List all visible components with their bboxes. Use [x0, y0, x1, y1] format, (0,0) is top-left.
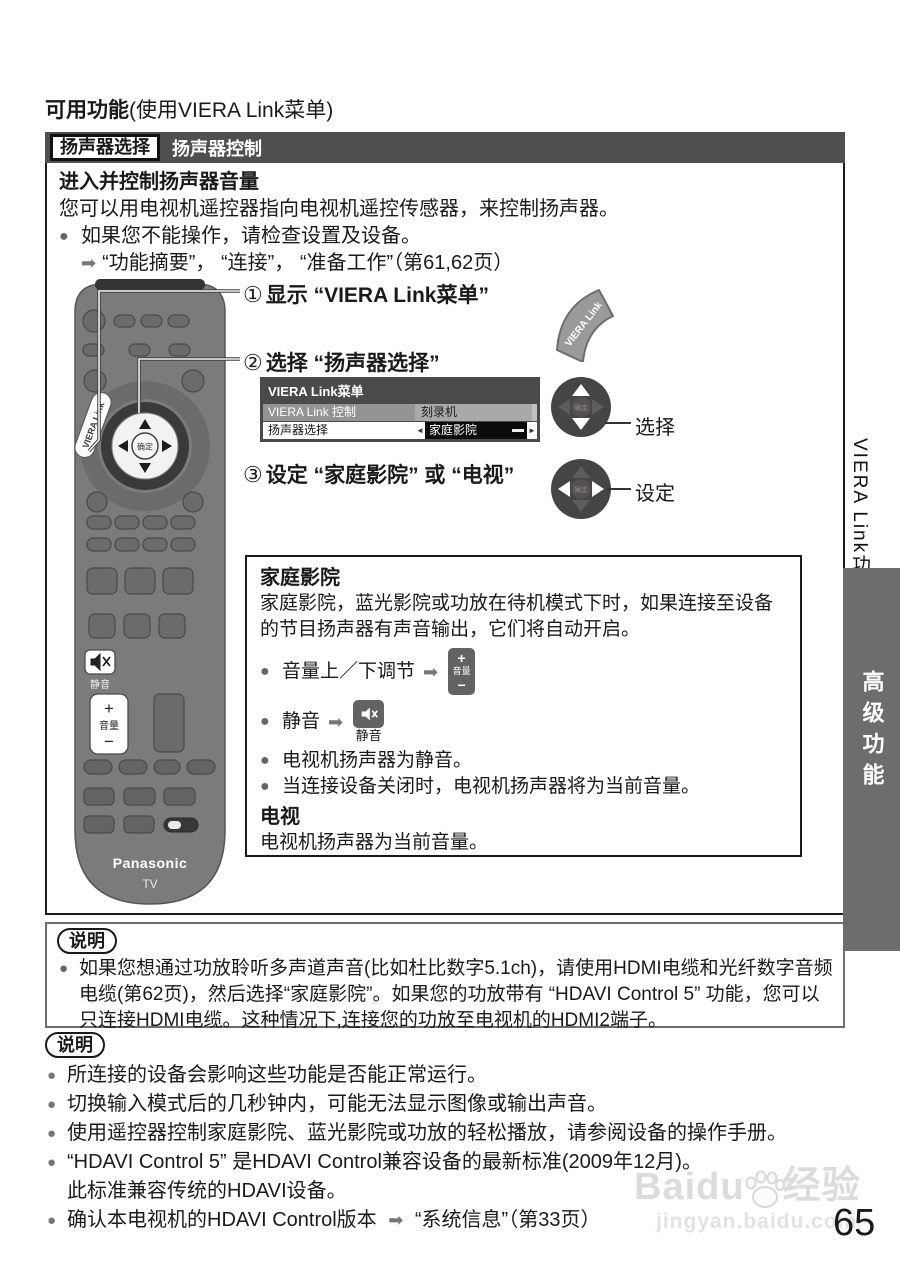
mute-speaker-icon — [359, 705, 379, 723]
volume-minus: − — [104, 732, 114, 751]
channel-rocker — [154, 694, 184, 752]
heading-normal: (使用VIERA Link菜单) — [129, 99, 333, 122]
osd-menu-row-2: 扬声器选择 ◄ 家庭影院 ► — [263, 422, 537, 439]
volume-minus-glyph: − — [458, 678, 466, 692]
note-1-label: 说明 — [57, 928, 117, 954]
watermark: Baidu 经验 — [634, 1154, 861, 1209]
sidebar-chapter-tab: 高级功能 — [843, 568, 900, 951]
remote-control-illustration: 确定 VIERA Link 静音 + — [57, 278, 243, 912]
osd-scrollbar — [532, 404, 537, 421]
dpad-ok-label: 确定 — [574, 403, 588, 412]
note-2-item: 使用遥控器控制家庭影院、蓝光影院或功放的轻松播放，请参阅设备的操作手册。 — [45, 1119, 855, 1148]
select-label: 选择 — [635, 411, 675, 440]
osd-row2-value-text: 家庭影院 — [429, 423, 477, 437]
heading-strong: 可用功能 — [45, 99, 129, 122]
remote-top-cap — [95, 279, 205, 290]
osd-row1-label: VIERA Link 控制 — [263, 404, 415, 421]
ok-label: 确定 — [137, 442, 153, 452]
osd-row2-value: 家庭影院 — [425, 422, 527, 439]
intro-title: 进入并控制扬声器音量 — [59, 169, 829, 196]
section-title: 扬声器控制 — [172, 135, 262, 161]
mute-bullet-text: 静音 — [260, 709, 320, 735]
volume-caption: 音量 — [99, 719, 119, 732]
osd-row1-value: 刻录机 — [415, 404, 532, 421]
osd-menu-title: VIERA Link菜单 — [263, 380, 537, 403]
mute-caption: 静音 — [356, 728, 382, 743]
note-2-last-text: 确认本电视机的HDAVI Control版本 — [67, 1209, 377, 1231]
note-2-item: 所连接的设备会影响这些功能是否能正常运行。 — [45, 1061, 855, 1090]
watermark-url: jingyan.baidu.com — [656, 1210, 857, 1234]
page-heading: 可用功能(使用VIERA Link菜单) — [45, 94, 333, 124]
note-1-text: 如果您想通过功放聆听多声道声音(比如杜比数字5.1ch)，请使用HDMI电缆和光… — [57, 956, 833, 1034]
dpad-select-icon: 确定 — [549, 375, 613, 439]
step-1-number: ① — [243, 282, 263, 307]
step-1: ①显示 “VIERA Link菜单” — [243, 279, 489, 309]
left-arrow-icon: ◄ — [415, 422, 425, 439]
page-number: 65 — [833, 1202, 875, 1245]
arrow-icon — [328, 709, 343, 735]
paw-icon — [741, 1169, 787, 1211]
section-bar: 扬声器选择 扬声器控制 — [45, 132, 845, 163]
note-2-last-ref: “系统信息”（第33页） — [415, 1209, 601, 1231]
note-2-label: 说明 — [45, 1032, 105, 1058]
step-2-number: ② — [243, 350, 263, 375]
volume-button-icon: + 音量 − — [448, 648, 475, 695]
mute-key-caption: 静音 — [90, 678, 110, 691]
watermark-suffix: 经验 — [783, 1154, 861, 1209]
set-lead-line — [607, 488, 631, 490]
intro-block: 进入并控制扬声器音量 您可以用电视机遥控器指向电视机遥控传感器，来控制扬声器。 … — [59, 169, 829, 277]
brand-label: Panasonic — [113, 855, 188, 871]
arrow-icon — [81, 253, 96, 273]
sidebar-chapter-tab-label: 高级功能 — [856, 670, 888, 794]
tv-mode-title: 电视 — [260, 804, 787, 830]
slide-switch-knob — [168, 821, 181, 829]
volume-label: 音量 — [453, 667, 471, 676]
home-theater-box: 家庭影院 家庭影院，蓝光影院或功放在待机模式下时，如果连接至设备的节目扬声器有声… — [245, 555, 802, 857]
step-3-number: ③ — [243, 462, 263, 487]
dpad-set-icon: 确定 — [549, 457, 613, 521]
intro-ref: “功能摘要”， “连接”， “准备工作”（第61,62页） — [102, 252, 513, 274]
volume-bullet-row: 音量上／下调节 + 音量 − — [260, 648, 787, 695]
mute-button-icon: 静音 — [353, 700, 384, 743]
volume-plus: + — [104, 699, 114, 718]
osd-row2-label: 扬声器选择 — [263, 422, 415, 439]
section-tag: 扬声器选择 — [50, 134, 160, 161]
tv-label: TV — [142, 877, 157, 891]
osd-menu: VIERA Link菜单 VIERA Link 控制 刻录机 扬声器选择 ◄ 家… — [260, 377, 540, 442]
viera-link-button-graphic: VIERA Link — [537, 276, 629, 362]
step-2: ②选择 “扬声器选择” — [243, 347, 440, 377]
volume-plus-glyph: + — [458, 651, 466, 665]
volume-bullet-text: 音量上／下调节 — [260, 659, 415, 685]
step-3: ③设定 “家庭影院” 或 “电视” — [243, 459, 514, 489]
watermark-brand: Baidu — [634, 1166, 745, 1209]
mute-bullet-row: 静音 静音 — [260, 700, 787, 743]
mute-glyph-box — [353, 700, 384, 728]
step-3-text: 设定 “家庭影院” 或 “电视” — [266, 464, 515, 487]
tv-mode-desc: 电视机扬声器为当前音量。 — [260, 830, 787, 856]
dpad-ok-label: 确定 — [574, 485, 588, 494]
main-content-box: 进入并控制扬声器音量 您可以用电视机遥控器指向电视机遥控传感器，来控制扬声器。 … — [45, 163, 845, 915]
home-theater-desc: 家庭影院，蓝光影院或功放在待机模式下时，如果连接至设备的节目扬声器有声音输出，它… — [260, 591, 787, 643]
set-label: 设定 — [635, 477, 675, 506]
arrow-icon — [388, 1210, 403, 1230]
ht-note-1: 电视机扬声器为静音。 — [282, 750, 472, 771]
note-2-item: 切换输入模式后的几秒钟内，可能无法显示图像或输出声音。 — [45, 1090, 855, 1119]
right-arrow-icon: ► — [527, 422, 537, 439]
note-box-1: 说明 如果您想通过功放聆听多声道声音(比如杜比数字5.1ch)，请使用HDMI电… — [45, 922, 845, 1028]
intro-line: 您可以用电视机遥控器指向电视机遥控传感器，来控制扬声器。 — [59, 196, 829, 223]
intro-bullet: 如果您不能操作，请检查设置及设备。 — [81, 225, 421, 247]
osd-value-indicator — [512, 429, 524, 432]
osd-menu-row-1: VIERA Link 控制 刻录机 — [263, 404, 537, 421]
step-2-text: 选择 “扬声器选择” — [266, 352, 440, 375]
select-lead-line — [605, 422, 631, 424]
home-theater-title: 家庭影院 — [260, 565, 787, 591]
ht-note-2: 当连接设备关闭时，电视机扬声器将为当前音量。 — [282, 776, 700, 797]
arrow-icon — [423, 659, 438, 685]
step-1-text: 显示 “VIERA Link菜单” — [266, 284, 489, 307]
manual-page: 可用功能(使用VIERA Link菜单) 扬声器选择 扬声器控制 进入并控制扬声… — [0, 0, 900, 1280]
